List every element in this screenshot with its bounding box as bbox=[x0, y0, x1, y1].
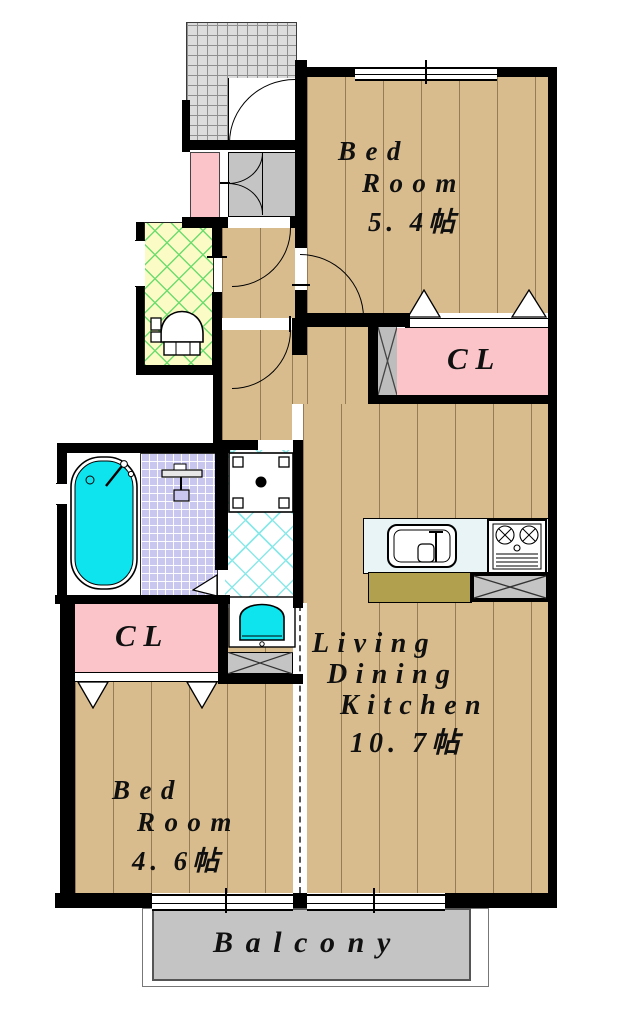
balcony-label: Balcony bbox=[213, 926, 403, 960]
wall-below-closet-upper bbox=[368, 395, 557, 404]
pipe-pillar bbox=[378, 327, 397, 395]
wall-below-vanity bbox=[218, 674, 303, 684]
wall bbox=[182, 140, 295, 150]
wall-bath-washroom bbox=[215, 453, 228, 570]
window-tick bbox=[225, 888, 227, 913]
closet-lower-fold-door-right bbox=[186, 681, 218, 709]
ldk-name-line2: Dining bbox=[327, 659, 458, 691]
wall-toilet-right-upper bbox=[212, 222, 222, 257]
wall-bottom-post bbox=[293, 893, 307, 908]
wall-left-lower-outer bbox=[60, 595, 75, 908]
floor-plan: Balcony bbox=[0, 0, 625, 1024]
vanity-sink-fixture bbox=[228, 596, 296, 652]
laundry-pan bbox=[227, 652, 293, 674]
bath-mixer-fixture bbox=[158, 458, 206, 504]
wall-toilet-right-lower bbox=[212, 292, 222, 365]
wall-bedroom-left-upper bbox=[295, 60, 307, 248]
bedroom-upper-size: 5. 4帖 bbox=[368, 200, 460, 239]
bedroom-upper-name-line2: Room bbox=[362, 168, 466, 199]
window-ldk bbox=[307, 894, 445, 911]
wall-below-bath bbox=[55, 595, 230, 604]
closet-lower-label: CL bbox=[115, 618, 170, 654]
wall-washroom-right bbox=[293, 440, 303, 608]
bedroom-lower-size: 4. 6帖 bbox=[132, 839, 224, 878]
shoe-cabinet-center-line bbox=[262, 152, 263, 215]
window-bath-small bbox=[56, 483, 67, 505]
bedroom-lower-name-line1: Bed bbox=[112, 775, 184, 806]
closet-upper-fold-door-left bbox=[407, 289, 441, 318]
room-boundary-dashed-line bbox=[299, 605, 301, 893]
bedroom-lower-name-line2: Room bbox=[137, 807, 241, 838]
closet-upper-fold-door-right bbox=[511, 289, 547, 318]
kitchen-sink-fixture bbox=[386, 522, 460, 570]
wall-top-left-segment bbox=[303, 67, 355, 77]
ldk-link-floor2 bbox=[292, 355, 307, 404]
ldk-upper-link-floor bbox=[307, 327, 368, 404]
wall-right-outer bbox=[548, 67, 557, 908]
kitchen-counter-olive bbox=[368, 572, 472, 603]
window-tick bbox=[425, 60, 427, 84]
ldk-size: 10. 7帖 bbox=[350, 721, 464, 761]
wall-bath-top bbox=[57, 443, 230, 453]
toilet-fixture bbox=[149, 288, 213, 360]
window-toilet-small bbox=[135, 240, 145, 287]
door-tick bbox=[207, 256, 227, 258]
wall-bottom-left bbox=[55, 893, 152, 908]
refrigerator-space bbox=[470, 572, 550, 602]
washing-machine-fixture bbox=[227, 451, 295, 514]
closet-upper-label: CL bbox=[447, 341, 502, 377]
gas-stove-fixture bbox=[487, 519, 547, 574]
wall-vanity-left bbox=[218, 603, 228, 683]
door-tick bbox=[289, 316, 291, 332]
door-tick bbox=[292, 284, 310, 286]
wall-left-of-pillar bbox=[368, 327, 378, 395]
ldk-name-line3: Kitchen bbox=[340, 690, 489, 722]
wall-toilet-bottom bbox=[136, 365, 222, 375]
wall-hall-left bbox=[213, 375, 222, 450]
closet-upper-door-track bbox=[405, 318, 548, 328]
wall-hall-stub bbox=[292, 318, 307, 355]
window-tick bbox=[373, 888, 375, 913]
entrance-side-closet bbox=[190, 152, 220, 219]
wall-bath-left bbox=[57, 443, 67, 603]
window-bedroom-lower bbox=[152, 894, 293, 911]
bedroom-upper-name-line1: Bed bbox=[338, 136, 410, 167]
wall-bottom-right bbox=[445, 893, 557, 908]
bathtub-fixture bbox=[68, 454, 142, 594]
ldk-name-line1: Living bbox=[312, 628, 437, 660]
closet-lower-fold-door-left bbox=[77, 681, 109, 709]
